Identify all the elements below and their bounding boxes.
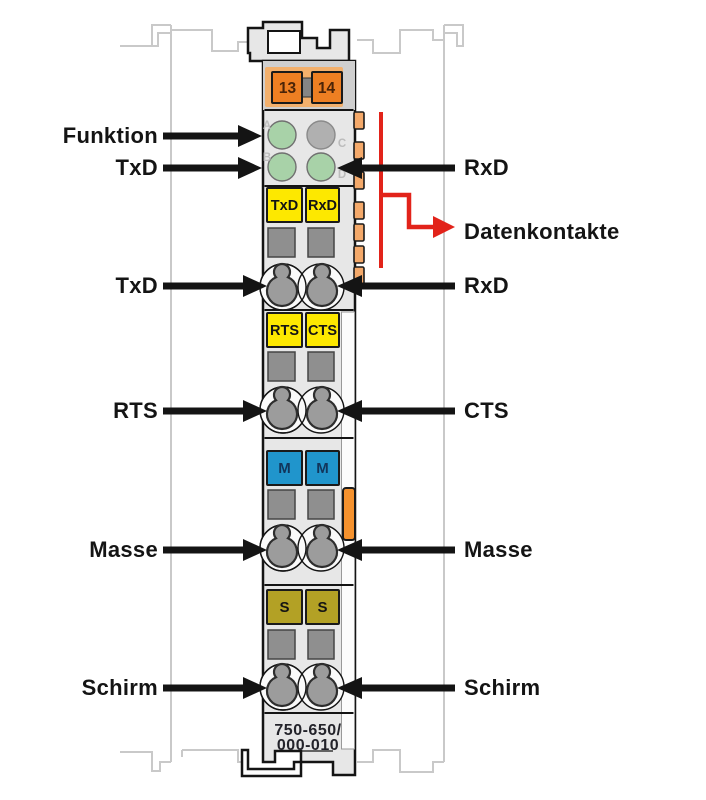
data-contact-tab: [354, 246, 364, 263]
marker-elbow: [381, 195, 434, 227]
arrow-rts: [163, 400, 267, 422]
arrow-txd-wire: [163, 275, 267, 297]
callout-label-rxd-led: RxD: [464, 155, 509, 180]
led-D-rxd: [307, 153, 335, 181]
data-contact-tab: [354, 142, 364, 159]
clamp-opening: [268, 490, 295, 519]
power-jumper-strip: 13 14: [263, 61, 355, 110]
callout-label-rts: RTS: [113, 398, 158, 423]
diagram-page: 13 14 A B C D TxD RxD RTS CTS M M: [0, 0, 706, 800]
plate-rxd-label: RxD: [308, 198, 337, 214]
callout-label-txd-wire: TxD: [116, 273, 158, 298]
arrow-cts: [337, 400, 455, 422]
arrow-schirm-right: [337, 677, 455, 699]
neighbor-module-outline-right: [357, 25, 463, 772]
led-C: [307, 121, 335, 149]
callout-label-cts: CTS: [464, 398, 509, 423]
arrow-schirm-left: [163, 677, 267, 699]
clamp-opening: [268, 228, 295, 257]
callout-label-schirm-left: Schirm: [82, 675, 158, 700]
din-rail-groove-top: [268, 31, 300, 53]
arrow-rxd-led: [337, 157, 455, 179]
clamp-opening: [308, 630, 334, 659]
callout-label-datenkontakte: Datenkontakte: [464, 219, 620, 244]
data-contact-tab: [354, 202, 364, 219]
plate-m-left-label: M: [278, 460, 291, 477]
plate-s-left-label: S: [279, 599, 289, 616]
data-contact-tab: [354, 224, 364, 241]
callout-label-txd-led: TxD: [116, 155, 158, 180]
callout-labels-right: RxD Datenkontakte RxD CTS Masse Schirm: [464, 155, 620, 700]
power-terminal-14-label: 14: [318, 80, 336, 97]
arrow-funktion: [163, 125, 262, 147]
led-letter-b: B: [263, 152, 271, 164]
clamp-opening: [268, 352, 295, 381]
callout-label-schirm-right: Schirm: [464, 675, 540, 700]
arrow-masse-left: [163, 539, 267, 561]
plate-txd-label: TxD: [271, 198, 298, 214]
led-B-txd: [268, 153, 296, 181]
arrow-txd-led: [163, 157, 262, 179]
clamp-opening: [268, 630, 295, 659]
callout-label-masse-right: Masse: [464, 537, 533, 562]
arrow-rxd-wire: [337, 275, 455, 297]
part-number-line2: 000-010: [277, 737, 339, 754]
led-letter-c: C: [338, 138, 346, 150]
callout-label-masse-left: Masse: [89, 537, 158, 562]
plate-m-right-label: M: [316, 460, 329, 477]
plate-s-right-label: S: [317, 599, 327, 616]
data-contact-tab: [354, 112, 364, 129]
arrow-masse-right: [337, 539, 455, 561]
jumper-bridge: [302, 78, 312, 97]
plate-cts-label: CTS: [308, 323, 337, 339]
clamp-opening: [308, 490, 334, 519]
part-number: 750-650/ 000-010: [274, 722, 341, 754]
plate-rts-label: RTS: [270, 323, 299, 339]
led-letter-a: A: [263, 120, 271, 132]
module-wiring-diagram: 13 14 A B C D TxD RxD RTS CTS M M: [0, 0, 706, 800]
clamp-opening: [308, 228, 334, 257]
led-A-function: [268, 121, 296, 149]
release-latch: [343, 488, 355, 540]
callout-labels-left: Funktion TxD TxD RTS Masse Schirm: [63, 123, 158, 700]
power-terminal-13-label: 13: [279, 80, 297, 97]
clamp-opening: [308, 352, 334, 381]
callout-label-funktion: Funktion: [63, 123, 158, 148]
callout-label-rxd-wire: RxD: [464, 273, 509, 298]
